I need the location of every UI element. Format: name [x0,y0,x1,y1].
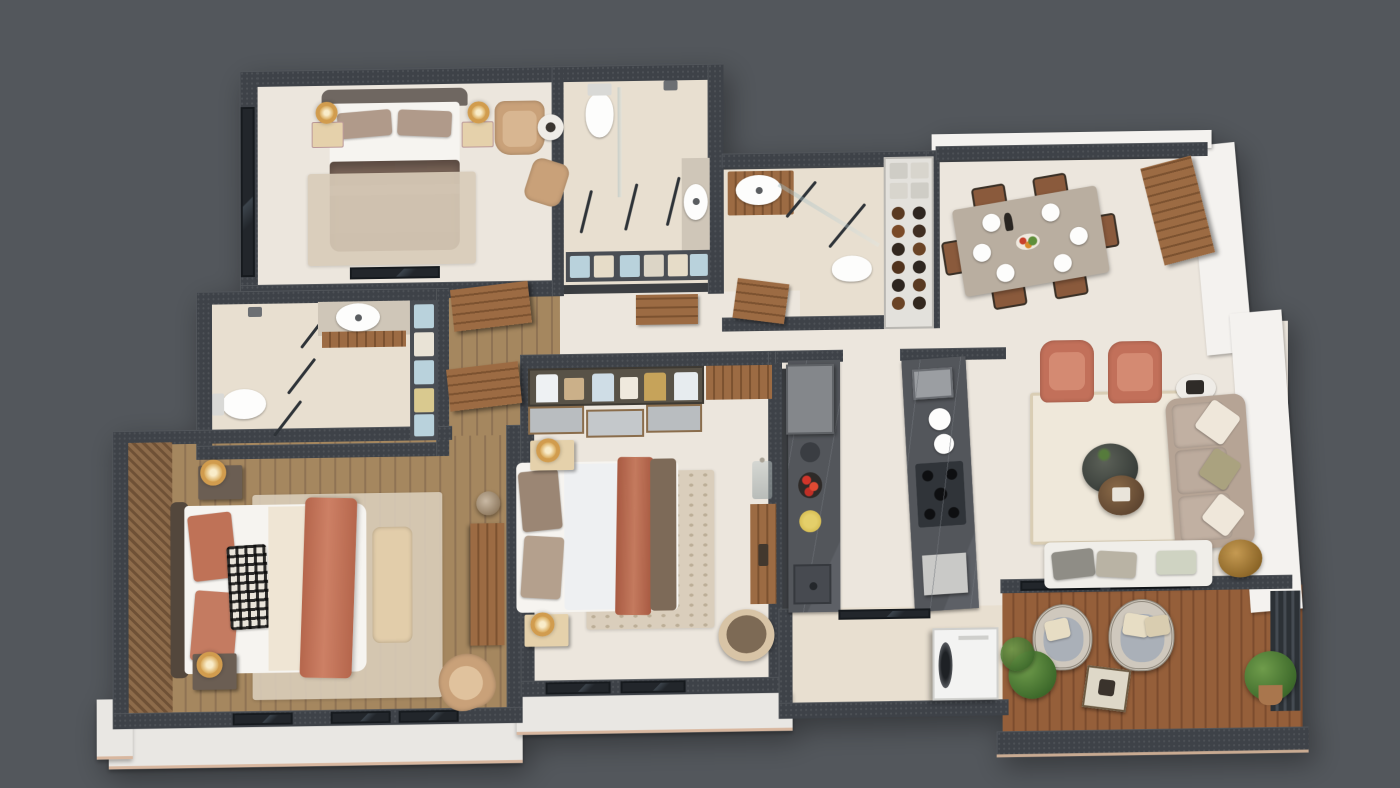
towel [414,414,434,436]
guestbath-towel-shelf [410,300,438,440]
towel [690,254,708,276]
pantry-jar [892,207,905,220]
duvet [564,463,620,610]
towel [594,255,614,277]
toilet-tank [588,83,612,95]
master-rug [308,172,476,267]
plate [928,407,951,430]
kitchen-sink [793,564,831,605]
pillow-plaid [226,544,270,631]
washer-controls [958,636,988,640]
ensuite-sink [684,184,708,220]
towel [414,304,434,328]
daybed-pillow [1051,548,1096,581]
sliding-panel [586,409,644,438]
pantry-jar [913,260,926,273]
pantry-jar [913,296,926,309]
table-decor [546,122,556,132]
pantry-jar [913,206,926,219]
floor-plan [0,0,1400,788]
wall-dining-top [936,142,1208,160]
wall-laundry-bottom [779,699,1009,719]
pillow [518,469,563,533]
chair-seat [445,661,488,704]
gas-hob [915,461,966,528]
sink-drain [693,198,700,205]
console-decor [758,544,768,566]
pantry-jar [892,261,905,274]
towel [414,332,434,356]
daybed-pillow [1095,550,1137,578]
pantry-jar [913,278,926,291]
pantry-box [890,163,908,179]
pantry-jar [913,242,926,255]
table-tray [1186,380,1204,394]
folded-clothes [564,378,584,400]
throw-brown [650,458,676,610]
bedroom2-window-2 [399,710,459,723]
kitchen-hob-counter [901,356,979,612]
towel [644,255,664,277]
bedroom2-bed [176,503,366,674]
vase-branches [756,453,768,467]
sliding-panel [646,404,702,433]
pillow [520,535,564,599]
bedroom3-vase [752,461,772,499]
familybath-toilet [832,255,872,282]
pillow [337,109,393,140]
master-tv-console [350,266,440,279]
familybath-door [732,278,789,324]
towel [414,360,434,384]
kitchen-fridge-top [786,364,834,435]
ensuite-toilet [586,93,614,137]
bedroom3-closet-side [706,365,772,400]
table-decor [1098,679,1116,697]
counter-block [922,553,968,596]
living-armchair-rust [1040,340,1094,403]
table-plant [1096,448,1112,462]
living-daybed [1044,540,1212,589]
bedroom3-window-2 [621,680,686,693]
bedroom3-console [750,504,776,604]
toilet-tank [212,393,224,415]
sink-drain [756,187,763,194]
wicker-chair [1108,599,1174,672]
armchair-seat [1117,353,1153,392]
master-nightstand-right [462,121,494,148]
daybed-pillow [1156,550,1196,575]
folded-clothes [620,377,638,399]
bedroom2-wardrobe [470,523,504,646]
ensuite-glass-partition [618,87,622,197]
balcony-parapet [997,726,1309,757]
papasan-cushion [726,615,766,654]
pantry-box [911,162,929,178]
hanging-shirt [674,372,698,400]
armchair-seat [503,111,537,148]
washer-door [938,642,952,688]
table-book [1112,487,1130,501]
pantry-box [890,183,908,199]
pantry-jar [892,279,905,292]
plate [934,433,955,454]
master-window-left [241,107,255,277]
bedroom3-sliding-doors [528,404,704,437]
pantry-shelf [884,156,934,329]
hanging-shirt [536,374,558,402]
pantry-jar [892,243,905,256]
living-sofa [1165,393,1256,551]
washing-machine [932,627,998,700]
sink-drain [355,314,362,321]
plant-pot [1259,685,1283,705]
pantry-jar [913,224,926,237]
ensuite-towel-shelf [566,250,710,282]
towel [570,256,590,278]
pantry-jar [892,297,905,310]
corridor-door [636,294,698,325]
bedroom3-bed [516,460,678,613]
sink-drain [809,582,817,590]
pantry-jar [892,225,905,238]
coffee-machine [912,367,954,400]
wall-laundry-left [778,609,792,717]
bedroom2-bench [372,527,412,644]
sliding-panel [528,406,584,435]
towel [414,388,434,412]
master-nightstand-left [312,122,344,149]
bedroom3-open-closet [528,366,704,407]
hanging-shirt [592,373,614,401]
balcony-table [1082,665,1131,712]
pillow [397,109,452,137]
armchair-seat [1049,352,1085,391]
bedroom2-accent-wall [128,442,172,713]
towel [668,254,688,276]
wall-ensuite-right [707,64,723,294]
hanging-shirt [644,373,666,401]
guestbath-vanity-cabinet [322,331,406,348]
bedroom3-window-1 [546,681,611,694]
pantry-box [911,182,929,198]
laundry-glass-door [838,608,930,619]
bedroom2-window-3 [233,712,293,725]
hall-open-door [446,361,522,411]
guestbath-shower-head [248,307,262,317]
bedroom2-window-1 [331,711,391,724]
wicker-pillow [1144,614,1171,637]
scene-background [0,0,1400,788]
ledge-bedroom3 [517,691,793,735]
wall-bedroom2-left [112,431,129,727]
living-armchair-rust [1108,341,1162,404]
ensuite-shower-head [664,80,678,90]
throw-rust [615,457,653,615]
towel [620,255,640,277]
throw-rust [299,497,357,678]
